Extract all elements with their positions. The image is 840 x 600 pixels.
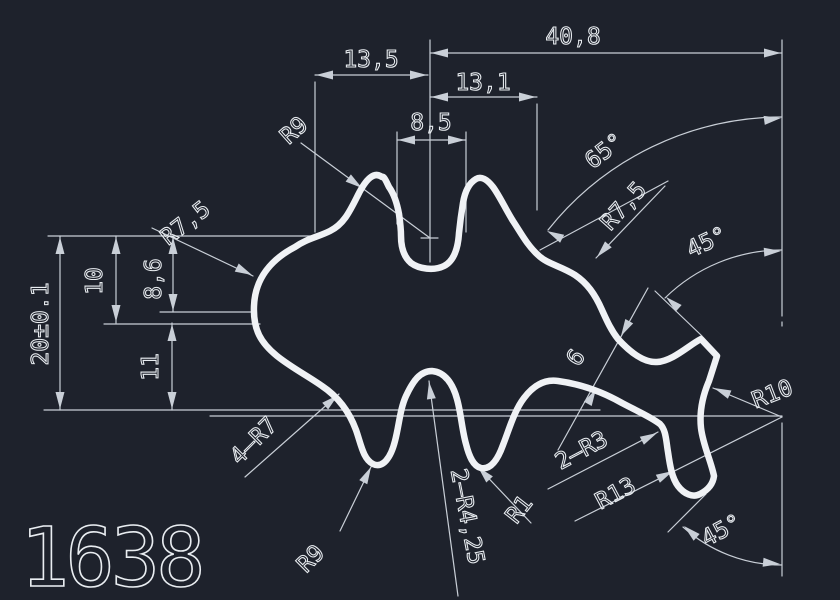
dim-label-13-5: 13,5 <box>343 47 398 73</box>
radius-label-2-r3: 2–R3 <box>551 426 612 475</box>
radius-label-r7-5-right: R7,5 <box>596 177 652 236</box>
radius-label-4-r7: 4–R7 <box>225 412 283 470</box>
dim-label-10: 10 <box>82 267 108 295</box>
dim-label-11: 11 <box>138 353 164 381</box>
dim-label-8-5: 8,5 <box>410 110 452 136</box>
dim-label-13-1: 13,1 <box>455 70 510 96</box>
part-number: 1638 <box>20 511 201 600</box>
dim-label-20: 20±0.1 <box>28 282 54 365</box>
angle-arcs <box>548 117 782 565</box>
cad-drawing-viewport[interactable]: 40,8 13,5 13,1 8,5 20±0.1 10 8,6 11 6 R9… <box>0 0 840 600</box>
angle-label-45-bottom: 45° <box>697 510 746 552</box>
radius-label-r10: R10 <box>748 375 796 414</box>
dim-label-8-6: 8,6 <box>141 258 167 300</box>
profile-outline <box>254 175 717 496</box>
angle-label-45-top: 45° <box>683 222 732 263</box>
radius-label-r7-5-left: R7,5 <box>156 196 216 251</box>
angle-label-65: 65° <box>580 128 629 174</box>
radius-label-r9-top: R9 <box>275 112 313 150</box>
dimension-labels: 40,8 13,5 13,1 8,5 20±0.1 10 8,6 11 6 R9… <box>28 24 797 578</box>
dim-label-6: 6 <box>562 345 591 371</box>
radius-label-r9-bottom: R9 <box>292 540 330 578</box>
profile-drawing-1638: 40,8 13,5 13,1 8,5 20±0.1 10 8,6 11 6 R9… <box>0 0 840 600</box>
dim-label-40-8: 40,8 <box>545 24 600 50</box>
